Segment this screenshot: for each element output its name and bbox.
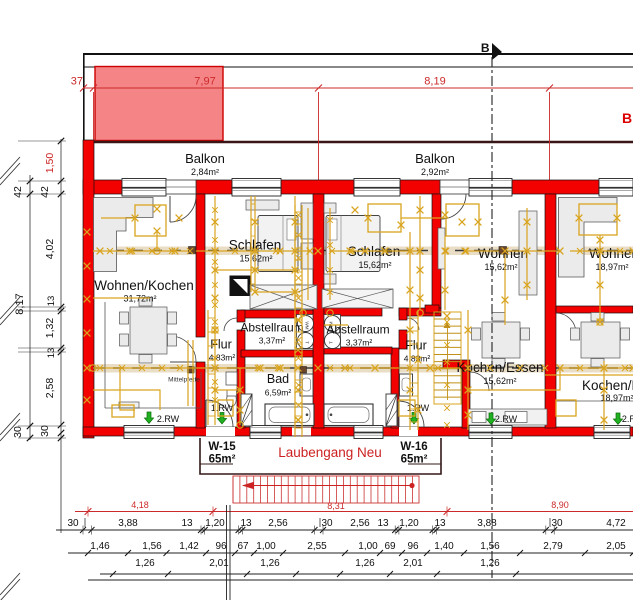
svg-text:13: 13 — [377, 518, 389, 529]
svg-text:96: 96 — [215, 541, 227, 552]
svg-text:2,01: 2,01 — [403, 558, 423, 569]
svg-text:18,97m²: 18,97m² — [600, 393, 633, 403]
svg-text:1,26: 1,26 — [135, 558, 155, 569]
svg-text:Wohnen: Wohnen — [589, 246, 633, 261]
svg-text:42: 42 — [12, 186, 24, 198]
svg-text:1,26: 1,26 — [355, 558, 375, 569]
svg-text:W-16: W-16 — [400, 441, 427, 453]
svg-text:Mittelpfette: Mittelpfette — [168, 377, 200, 384]
svg-text:WM: WM — [305, 322, 310, 330]
svg-text:W-15: W-15 — [208, 441, 236, 453]
svg-text:4,02: 4,02 — [44, 239, 56, 260]
svg-text:Wohnen/Kochen: Wohnen/Kochen — [94, 278, 194, 293]
svg-text:1,26: 1,26 — [260, 558, 280, 569]
svg-text:2,58: 2,58 — [44, 378, 56, 399]
svg-text:30: 30 — [12, 426, 24, 438]
svg-text:1,00: 1,00 — [256, 541, 276, 552]
svg-text:3,88: 3,88 — [118, 518, 138, 529]
svg-text:Balkon: Balkon — [415, 151, 455, 166]
svg-text:1,00: 1,00 — [358, 541, 378, 552]
svg-text:96: 96 — [407, 541, 419, 552]
svg-text:3,88: 3,88 — [477, 518, 497, 529]
svg-text:13: 13 — [46, 296, 57, 307]
svg-text:65m²: 65m² — [401, 454, 428, 466]
svg-text:Kochen/Essen: Kochen/Essen — [456, 360, 543, 375]
svg-text:Bad: Bad — [267, 372, 289, 386]
svg-text:Laubengang Neu: Laubengang Neu — [278, 445, 382, 460]
svg-text:15,62m²: 15,62m² — [358, 260, 391, 270]
svg-text:1,32: 1,32 — [44, 318, 56, 339]
svg-text:2,55: 2,55 — [307, 541, 327, 552]
svg-text:69: 69 — [384, 541, 396, 552]
svg-text:2,56: 2,56 — [350, 518, 370, 529]
svg-text:4,83m²: 4,83m² — [209, 353, 236, 363]
svg-text:30: 30 — [321, 518, 333, 529]
svg-text:B: B — [481, 41, 490, 55]
svg-text:37: 37 — [71, 76, 83, 88]
svg-text:2.RW: 2.RW — [157, 414, 180, 424]
svg-text:13: 13 — [181, 518, 193, 529]
svg-text:30: 30 — [67, 518, 79, 529]
svg-text:2,05: 2,05 — [606, 541, 626, 552]
svg-text:Flur: Flur — [210, 338, 232, 352]
svg-text:1,26: 1,26 — [480, 558, 500, 569]
svg-text:8,31: 8,31 — [327, 501, 345, 511]
svg-text:1,40: 1,40 — [434, 541, 454, 552]
svg-text:1,42: 1,42 — [179, 541, 199, 552]
svg-text:4,18: 4,18 — [131, 500, 149, 510]
svg-text:2,84m²: 2,84m² — [191, 167, 219, 177]
svg-text:15,62m²: 15,62m² — [484, 262, 517, 272]
svg-text:2,56: 2,56 — [268, 518, 288, 529]
svg-text:65m²: 65m² — [209, 454, 236, 466]
svg-text:3,37m²: 3,37m² — [259, 336, 286, 346]
svg-text:1,56: 1,56 — [480, 541, 500, 552]
svg-text:Flur: Flur — [405, 339, 427, 353]
svg-text:15,62m²: 15,62m² — [239, 254, 272, 264]
svg-text:1,50: 1,50 — [44, 153, 56, 174]
svg-text:67: 67 — [237, 541, 249, 552]
svg-text:2.RW: 2.RW — [622, 414, 633, 424]
svg-text:2,92m²: 2,92m² — [421, 167, 449, 177]
svg-text:1,46: 1,46 — [90, 541, 110, 552]
svg-text:1,20: 1,20 — [205, 518, 225, 529]
svg-text:B: B — [622, 110, 632, 126]
svg-text:13: 13 — [46, 348, 57, 359]
svg-text:3,37m²: 3,37m² — [346, 338, 373, 348]
svg-text:30: 30 — [551, 518, 563, 529]
svg-text:Kochen/Essen: Kochen/Essen — [582, 378, 633, 393]
svg-text:Balkon: Balkon — [185, 151, 225, 166]
svg-text:13: 13 — [240, 518, 252, 529]
svg-text:T: T — [305, 341, 310, 344]
svg-text:8,17: 8,17 — [14, 293, 26, 314]
svg-text:2.RW: 2.RW — [495, 414, 518, 424]
svg-text:30: 30 — [39, 425, 51, 437]
svg-text:4,72: 4,72 — [606, 518, 626, 529]
svg-text:Abstellraum: Abstellraum — [240, 321, 303, 335]
svg-text:8,90: 8,90 — [551, 500, 569, 510]
svg-text:2,79: 2,79 — [543, 541, 563, 552]
svg-text:6,59m²: 6,59m² — [265, 388, 292, 398]
svg-text:1,20: 1,20 — [399, 518, 419, 529]
svg-text:1,56: 1,56 — [142, 541, 162, 552]
svg-text:7,97: 7,97 — [194, 76, 215, 88]
svg-text:42: 42 — [39, 186, 51, 198]
svg-text:T: T — [329, 341, 334, 344]
svg-text:13: 13 — [434, 518, 446, 529]
svg-text:8,19: 8,19 — [424, 76, 445, 88]
svg-text:15,62m²: 15,62m² — [483, 376, 516, 386]
svg-text:1.RW: 1.RW — [211, 403, 234, 413]
